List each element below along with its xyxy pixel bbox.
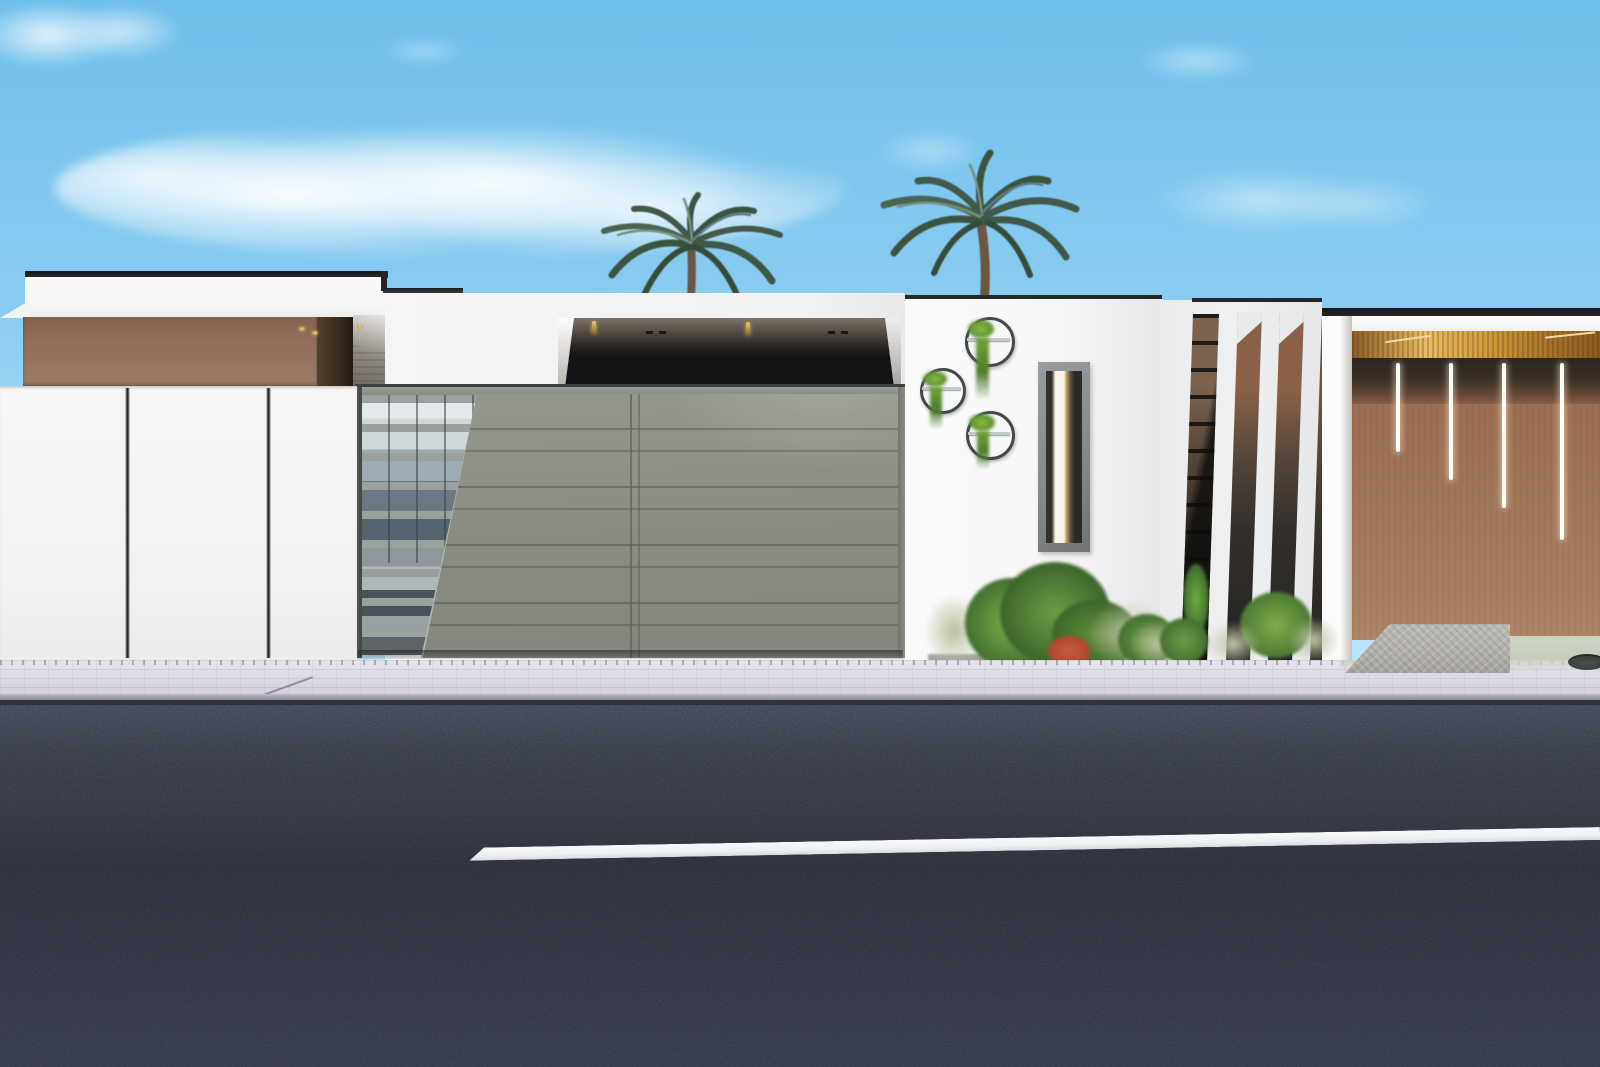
road xyxy=(0,700,1600,1067)
led-strip xyxy=(1449,363,1453,480)
shrub xyxy=(1160,618,1208,664)
right-wing-coping xyxy=(1322,308,1600,316)
right-wing-pillar xyxy=(1322,316,1352,660)
fence-joint xyxy=(266,388,271,658)
utility-disc xyxy=(1568,654,1600,670)
right-wing-beam xyxy=(1322,316,1600,331)
led-strip xyxy=(1560,363,1564,540)
road-shoulder-shadow xyxy=(0,700,1600,705)
asphalt-grain xyxy=(0,700,1600,1067)
led-strip xyxy=(1502,363,1506,508)
fence-joint xyxy=(125,388,130,658)
led-strip xyxy=(1396,363,1400,452)
fence-wall xyxy=(0,386,357,662)
grass-clump xyxy=(1288,618,1340,662)
architectural-rendering xyxy=(0,0,1600,1067)
